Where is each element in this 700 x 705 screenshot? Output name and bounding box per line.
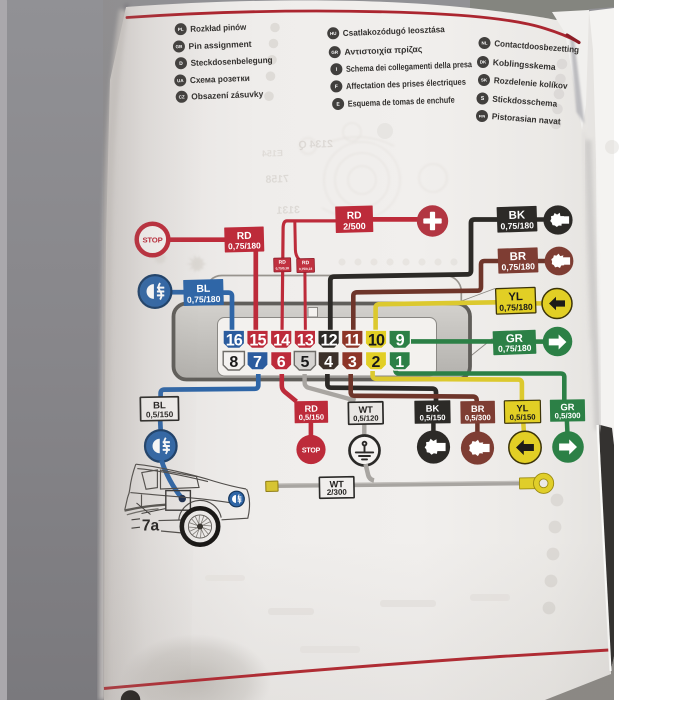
svg-text:13: 13 xyxy=(297,332,314,350)
svg-text:0,5/150: 0,5/150 xyxy=(510,413,537,422)
svg-text:0,75/180: 0,75/180 xyxy=(498,343,532,354)
svg-text:STOP: STOP xyxy=(302,448,321,455)
svg-text:8: 8 xyxy=(229,354,238,371)
svg-text:3: 3 xyxy=(348,354,357,371)
svg-text:0,75/180: 0,75/180 xyxy=(500,220,534,231)
svg-text:6: 6 xyxy=(277,354,286,371)
svg-text:2: 2 xyxy=(372,354,381,371)
svg-text:16: 16 xyxy=(226,332,243,350)
svg-text:14: 14 xyxy=(273,332,290,350)
svg-text:12: 12 xyxy=(320,332,337,350)
svg-text:0,75/180: 0,75/180 xyxy=(499,302,533,313)
svg-text:NL: NL xyxy=(482,41,488,46)
svg-text:0,75/180: 0,75/180 xyxy=(228,240,261,251)
svg-text:11: 11 xyxy=(345,332,361,350)
svg-text:0,75/0,18: 0,75/0,18 xyxy=(276,266,290,270)
svg-text:7158: 7158 xyxy=(265,173,289,186)
svg-text:F: F xyxy=(335,84,338,90)
svg-text:FIN: FIN xyxy=(479,114,486,119)
svg-text:0,75/0,18: 0,75/0,18 xyxy=(299,267,313,271)
svg-text:SK: SK xyxy=(481,78,488,83)
svg-text:0,5/300: 0,5/300 xyxy=(555,411,582,420)
svg-text:E154: E154 xyxy=(262,148,283,159)
svg-text:3131: 3131 xyxy=(276,204,300,217)
svg-text:10: 10 xyxy=(368,332,385,350)
svg-text:RD: RD xyxy=(302,260,310,266)
svg-text:0,75/180: 0,75/180 xyxy=(501,261,535,272)
svg-text:RD: RD xyxy=(347,210,362,221)
svg-text:RD: RD xyxy=(279,259,287,265)
svg-text:BK: BK xyxy=(426,403,440,414)
svg-text:0,5/150: 0,5/150 xyxy=(299,413,324,422)
svg-text:DK: DK xyxy=(480,60,487,65)
svg-text:7: 7 xyxy=(253,354,262,371)
svg-text:2/300: 2/300 xyxy=(327,488,348,497)
svg-text:GR: GR xyxy=(331,50,339,55)
svg-text:9: 9 xyxy=(396,332,405,350)
svg-text:15: 15 xyxy=(249,332,266,350)
svg-text:HU: HU xyxy=(330,31,337,36)
svg-text:0,5/120: 0,5/120 xyxy=(353,414,378,423)
svg-text:2/500: 2/500 xyxy=(343,221,366,232)
svg-text:0,5/150: 0,5/150 xyxy=(420,413,447,422)
svg-text:5: 5 xyxy=(300,354,309,371)
svg-text:1: 1 xyxy=(395,354,404,371)
svg-text:4: 4 xyxy=(324,354,333,371)
svg-text:0,5/300: 0,5/300 xyxy=(465,413,492,422)
